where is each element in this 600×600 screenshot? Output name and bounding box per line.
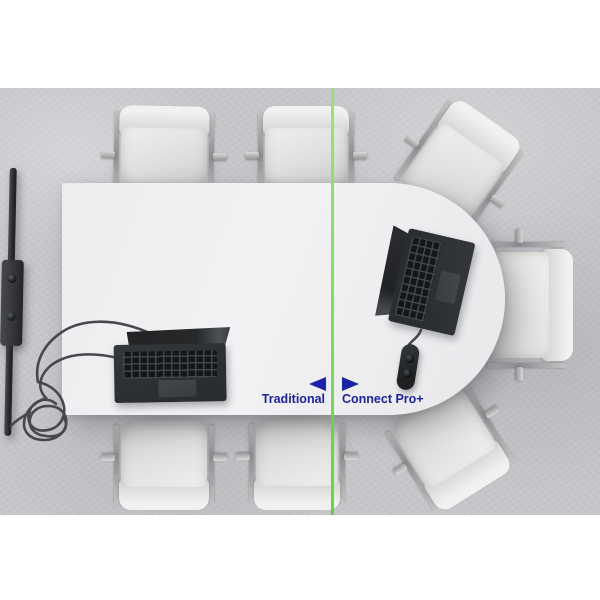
chair-armrest (516, 229, 523, 243)
laptop-keyboard (123, 350, 217, 379)
conference-room-photo (0, 88, 600, 515)
chair-top-left (111, 105, 216, 193)
chair-armrest (344, 453, 358, 460)
chair-armrest (101, 454, 115, 461)
chair-bottom-left (112, 420, 216, 510)
chair-armrest (353, 152, 367, 159)
laptop-base (114, 343, 227, 403)
speaker-camera-device (0, 260, 24, 346)
chair-seat (121, 420, 206, 487)
chair-top-center (256, 106, 356, 192)
chair-rail (340, 424, 345, 505)
chair-armrest (213, 153, 227, 160)
comparison-divider-line (331, 88, 334, 515)
chair-armrest (236, 453, 250, 460)
laptop-traditional (111, 325, 236, 405)
laptop-touchpad (158, 380, 196, 398)
chair-rail (487, 242, 568, 247)
chair-rail (487, 363, 568, 368)
chair-armrest (101, 151, 115, 158)
chair-rail (349, 111, 354, 187)
chair-rail (114, 425, 119, 504)
laptop-touchpad (435, 270, 461, 304)
chair-seat (256, 418, 338, 486)
display-edge-on (0, 168, 37, 437)
product-comparison-image: Traditional Connect Pro+ (0, 0, 600, 600)
chair-rail (209, 425, 214, 504)
chair-armrest (245, 152, 259, 159)
chair-armrest (213, 454, 227, 461)
cable-tangle-2 (28, 382, 64, 431)
chair-armrest (516, 367, 523, 381)
